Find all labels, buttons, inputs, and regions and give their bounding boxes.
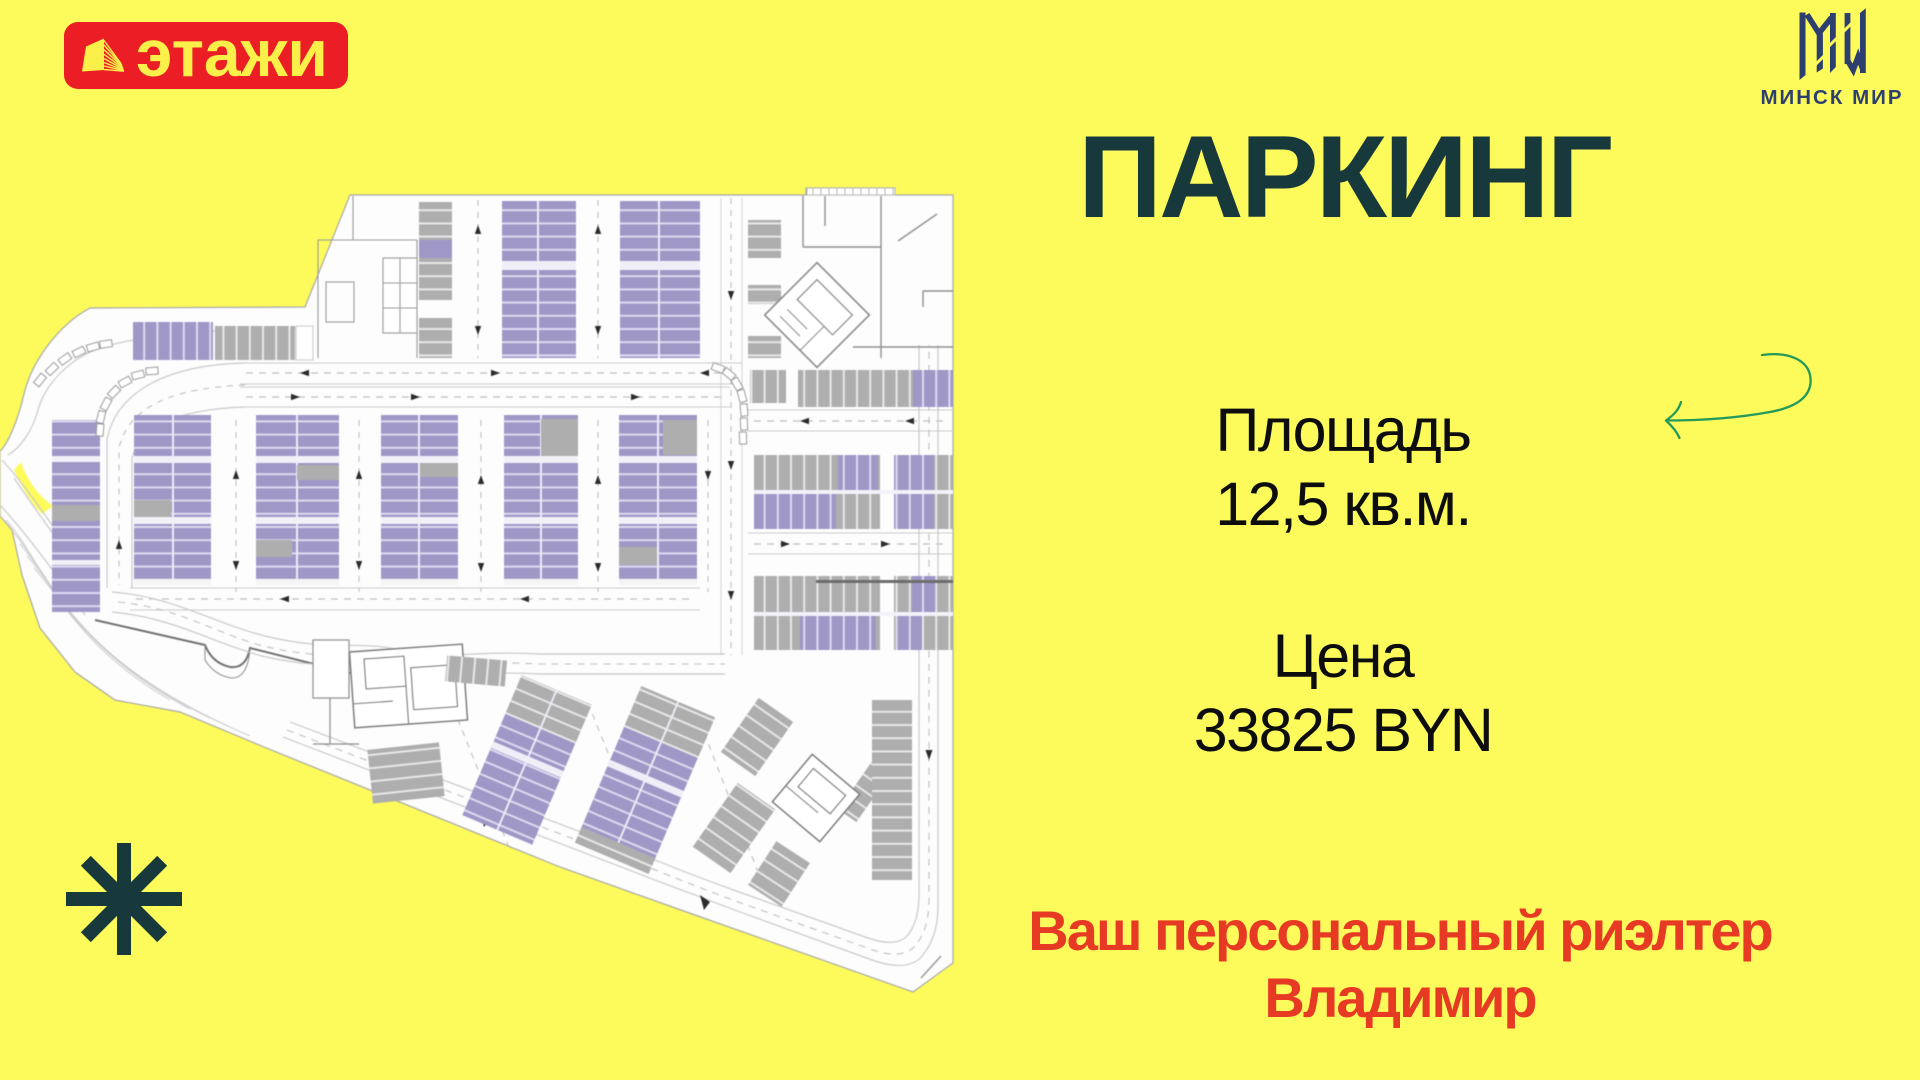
svg-text:МИНСК МИР: МИНСК МИР xyxy=(1760,86,1903,109)
svg-text:этажи: этажи xyxy=(136,22,328,89)
